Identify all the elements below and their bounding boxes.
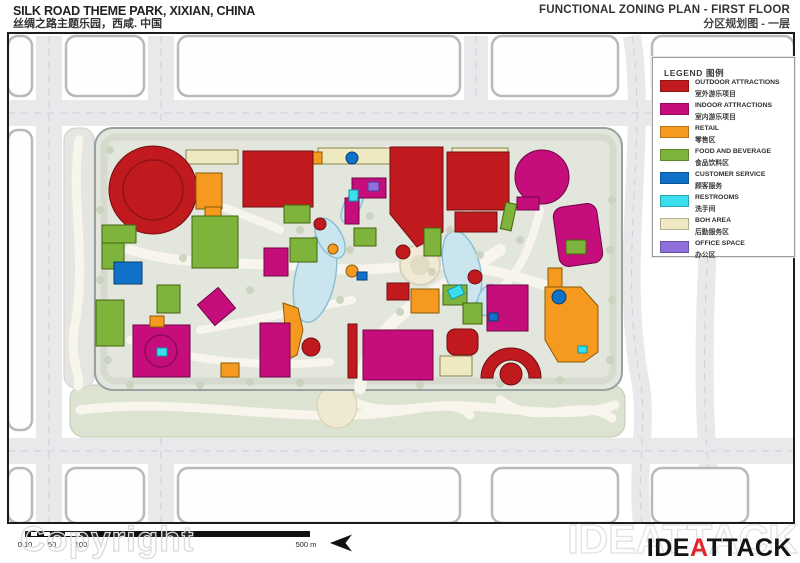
building-fnb <box>566 240 586 254</box>
building-retail <box>150 316 164 327</box>
tree <box>606 356 614 364</box>
city-block <box>652 468 748 523</box>
building-outdoor <box>348 324 357 378</box>
building-outdoor <box>455 212 497 232</box>
building-indoor <box>515 150 569 204</box>
tree <box>246 286 254 294</box>
legend-label-en: RETAIL <box>695 125 719 132</box>
building-boh <box>440 356 472 376</box>
building-outdoor <box>314 218 326 230</box>
city-block <box>178 468 460 523</box>
building-outdoor <box>387 283 409 300</box>
building-outdoor <box>243 151 313 207</box>
building-indoor <box>487 285 528 331</box>
legend-label-en: FOOD AND BEVERAGE <box>695 148 771 155</box>
legend-item-retail: RETAIL零售区 <box>653 125 794 147</box>
legend-label-en: OUTDOOR ATTRACTIONS <box>695 79 780 86</box>
legend-item-indoor: INDOOR ATTRACTIONS室内游乐项目 <box>653 102 794 124</box>
building-indoor <box>517 197 539 210</box>
legend-label-zh: 办公区 <box>695 249 715 259</box>
legend-label-en: CUSTOMER SERVICE <box>695 171 765 178</box>
tree <box>516 236 524 244</box>
building-indoor <box>363 330 433 380</box>
building-retail <box>548 268 562 288</box>
legend-swatch-retail <box>660 126 689 138</box>
tree <box>106 146 114 154</box>
tree <box>179 254 187 262</box>
legend-item-boh: BOH AREA后勤服务区 <box>653 217 794 239</box>
building-indoor <box>345 198 359 224</box>
tree <box>336 296 344 304</box>
scale-bar-label: 500 m <box>296 540 317 549</box>
city-block <box>66 36 144 96</box>
building-service <box>552 290 566 304</box>
building-service <box>346 152 358 164</box>
tree <box>476 251 484 259</box>
building-service <box>489 313 498 321</box>
building-indoor <box>260 323 290 377</box>
tree <box>608 196 616 204</box>
tree <box>296 379 304 387</box>
legend-label-zh: 室外游乐项目 <box>695 88 736 98</box>
tree <box>96 276 104 284</box>
building-outdoor <box>447 329 478 355</box>
building-outdoor <box>302 338 320 356</box>
building-outdoor <box>109 146 197 234</box>
city-block <box>8 130 32 430</box>
tree <box>346 246 354 254</box>
legend-label-en: OFFICE SPACE <box>695 240 745 247</box>
building-retail <box>196 173 222 209</box>
tree <box>366 212 374 220</box>
building-fnb <box>284 205 310 223</box>
building-retail <box>328 244 338 254</box>
road-curved <box>632 36 643 523</box>
city-block <box>492 468 618 523</box>
building-fnb <box>96 300 124 346</box>
building-outdoor <box>447 152 509 210</box>
legend-swatch-service <box>660 172 689 184</box>
legend-label-en: INDOOR ATTRACTIONS <box>695 102 772 109</box>
tree <box>416 381 424 389</box>
legend-label-zh: 后勤服务区 <box>695 226 729 236</box>
building-office <box>368 182 379 191</box>
copyright-watermark: Copyright <box>20 520 194 560</box>
building-restroom <box>578 346 587 353</box>
building-outdoor <box>500 363 522 385</box>
tree <box>296 226 304 234</box>
legend-swatch-indoor <box>660 103 689 115</box>
building-retail <box>346 265 358 277</box>
road <box>36 36 62 523</box>
building-restroom <box>157 348 167 356</box>
north-arrow <box>330 535 352 552</box>
building-service <box>357 272 367 280</box>
legend-item-fnb: FOOD AND BEVERAGE食品饮料区 <box>653 148 794 170</box>
tree <box>446 226 454 234</box>
legend-label-zh: 洗手间 <box>695 203 715 213</box>
building-service <box>114 262 142 284</box>
tree <box>104 356 112 364</box>
legend-item-outdoor: OUTDOOR ATTRACTIONS室外游乐项目 <box>653 79 794 101</box>
tree <box>396 308 404 316</box>
building-retail <box>411 289 439 313</box>
building-fnb <box>102 225 136 243</box>
building-outdoor <box>468 270 482 284</box>
tree <box>196 381 204 389</box>
city-block <box>8 36 32 96</box>
legend-label-zh: 顾客服务 <box>695 180 722 190</box>
building-fnb <box>290 238 317 262</box>
legend-item-service: CUSTOMER SERVICE顾客服务 <box>653 171 794 193</box>
building-outdoor <box>396 245 410 259</box>
legend-panel: LEGEND 图例 OUTDOOR ATTRACTIONS室外游乐项目INDOO… <box>652 57 795 257</box>
legend-item-office: OFFICE SPACE办公区 <box>653 240 794 262</box>
legend-swatch-fnb <box>660 149 689 161</box>
legend-swatch-office <box>660 241 689 253</box>
tree <box>428 268 436 276</box>
building-restroom <box>349 190 358 201</box>
building-fnb <box>354 228 376 246</box>
central-plaza-core <box>410 255 430 275</box>
building-boh <box>186 150 238 164</box>
legend-title: LEGEND 图例 <box>664 67 724 79</box>
tree <box>606 246 614 254</box>
tree <box>556 376 564 384</box>
legend-label-zh: 零售区 <box>695 134 715 144</box>
tree <box>246 378 254 386</box>
ideattack-logo: IDEATTACK <box>647 534 792 563</box>
legend-item-restroom: RESTROOMS洗手间 <box>653 194 794 216</box>
legend-swatch-boh <box>660 218 689 230</box>
building-fnb <box>192 216 238 268</box>
city-block <box>8 468 32 523</box>
building-indoor <box>552 202 604 268</box>
building-retail <box>221 363 239 377</box>
legend-label-zh: 室内游乐项目 <box>695 111 736 121</box>
legend-swatch-outdoor <box>660 80 689 92</box>
building-indoor <box>264 248 288 276</box>
building-fnb <box>157 285 180 313</box>
building-fnb <box>463 303 482 324</box>
legend-label-en: RESTROOMS <box>695 194 739 201</box>
tree <box>96 206 104 214</box>
legend-label-zh: 食品饮料区 <box>695 157 729 167</box>
city-block <box>66 468 144 523</box>
legend-label-en: BOH AREA <box>695 217 731 224</box>
tree <box>126 381 134 389</box>
tree <box>608 296 616 304</box>
building-fnb <box>424 228 441 256</box>
legend-swatch-restroom <box>660 195 689 207</box>
city-block <box>492 36 618 96</box>
city-block <box>178 36 460 96</box>
